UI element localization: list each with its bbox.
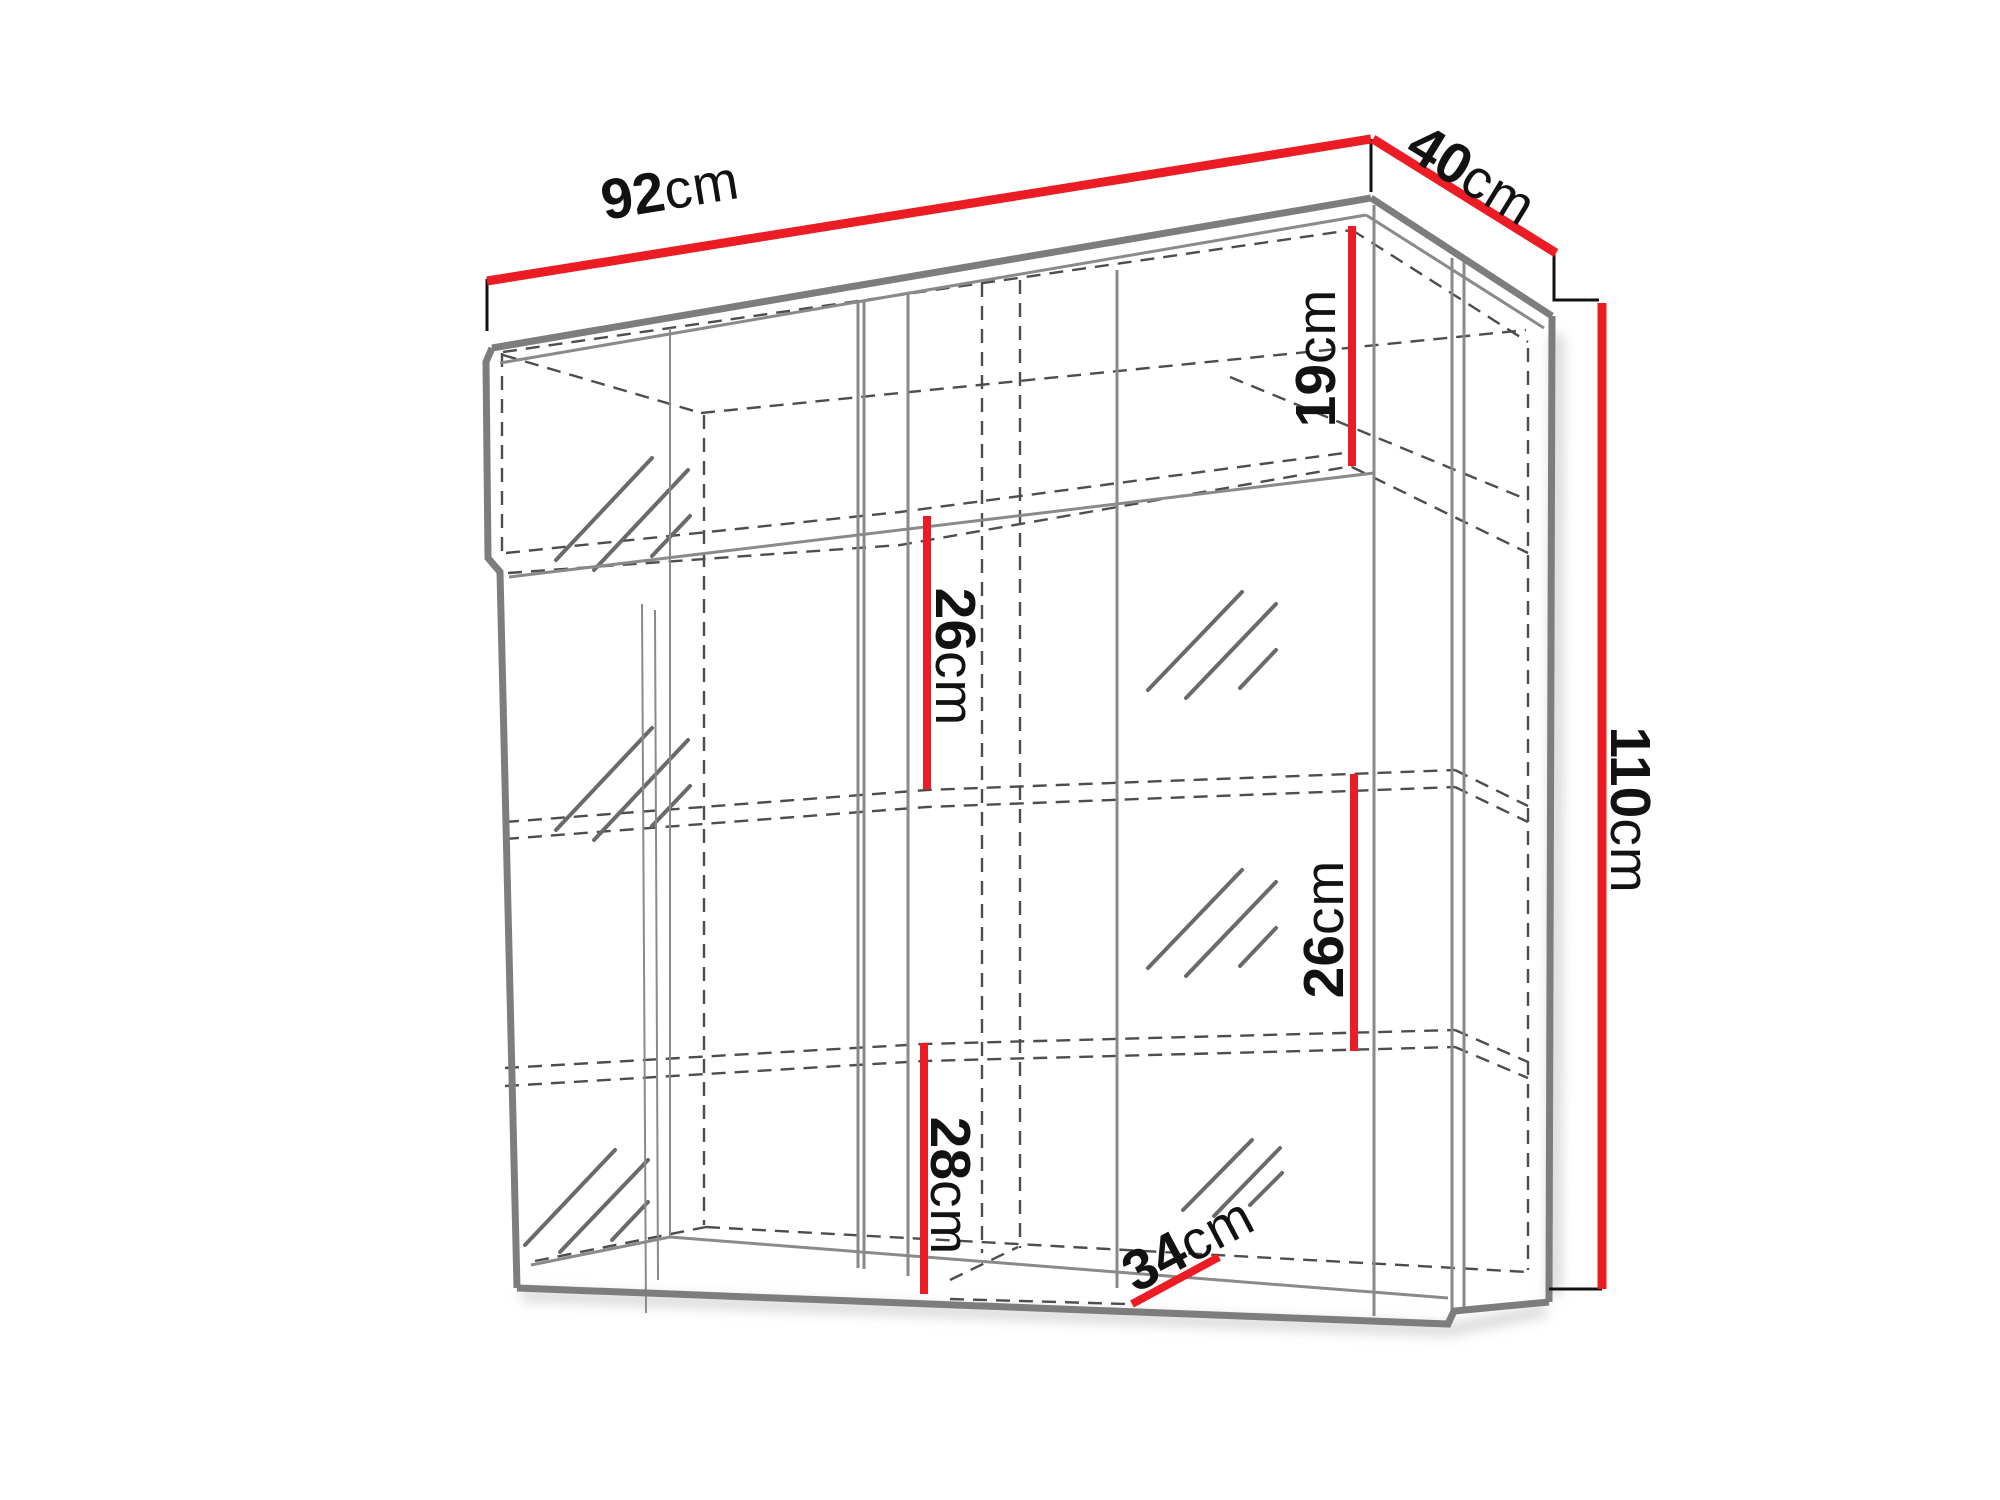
dim-interior-depth-label: 34cm — [1112, 1183, 1265, 1305]
dimension-lines — [487, 139, 1602, 1304]
dim-upper-compartment-label: 19cm — [1284, 289, 1348, 428]
dim-top-width-label: 92cm — [596, 147, 743, 233]
dim-top-depth-label: 40cm — [1396, 111, 1548, 238]
tick-depth-step — [1554, 254, 1599, 300]
dimension-diagram-canvas: 92cm 40cm 110cm 19cm 26cm 26cm 28cm 34cm — [0, 0, 2000, 1500]
glass-reflection-marks — [525, 458, 1282, 1313]
dim-right-height-label: 110cm — [1598, 726, 1662, 893]
dim-bottom-shelf-gap-label: 28cm — [918, 1117, 982, 1256]
cabinet-dimension-diagram: 92cm 40cm 110cm 19cm 26cm 26cm 28cm 34cm — [0, 0, 2000, 1500]
dimension-labels: 92cm 40cm 110cm 19cm 26cm 26cm 28cm 34cm — [596, 111, 1662, 1304]
dim-left-shelf-gap-label: 26cm — [923, 588, 987, 727]
dim-right-shelf-gap-label: 26cm — [1292, 860, 1356, 999]
